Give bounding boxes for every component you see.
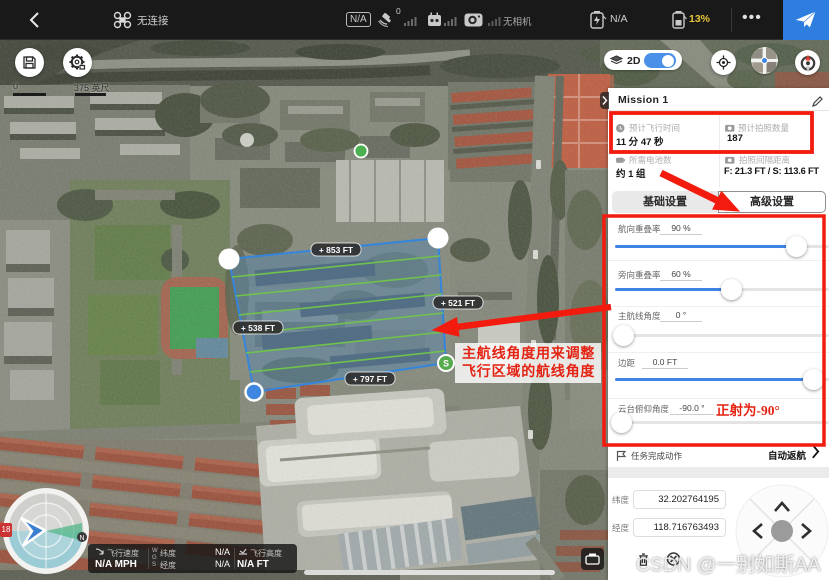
svg-text:+ 853 FT: + 853 FT [319,245,354,255]
svg-text:+ 521 FT: + 521 FT [441,298,476,308]
svg-text:+ 797 FT: + 797 FT [353,374,388,384]
svg-text:S: S [443,359,449,369]
svg-text:+ 538 FT: + 538 FT [241,323,276,333]
